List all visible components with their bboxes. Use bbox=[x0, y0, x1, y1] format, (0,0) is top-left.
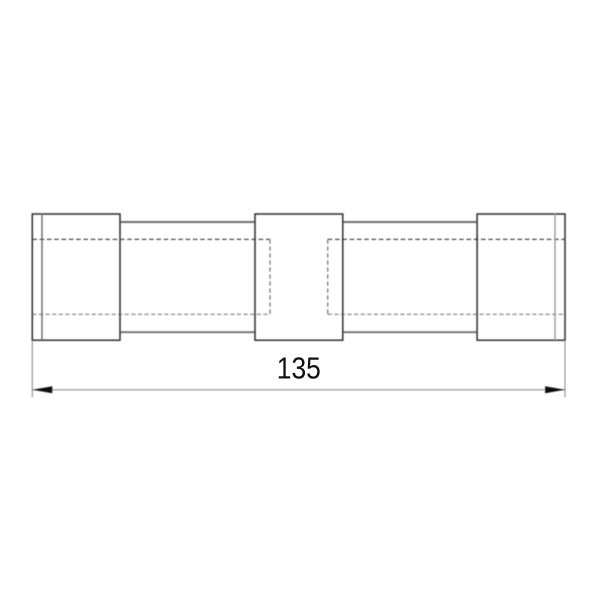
svg-text:135: 135 bbox=[277, 350, 321, 385]
